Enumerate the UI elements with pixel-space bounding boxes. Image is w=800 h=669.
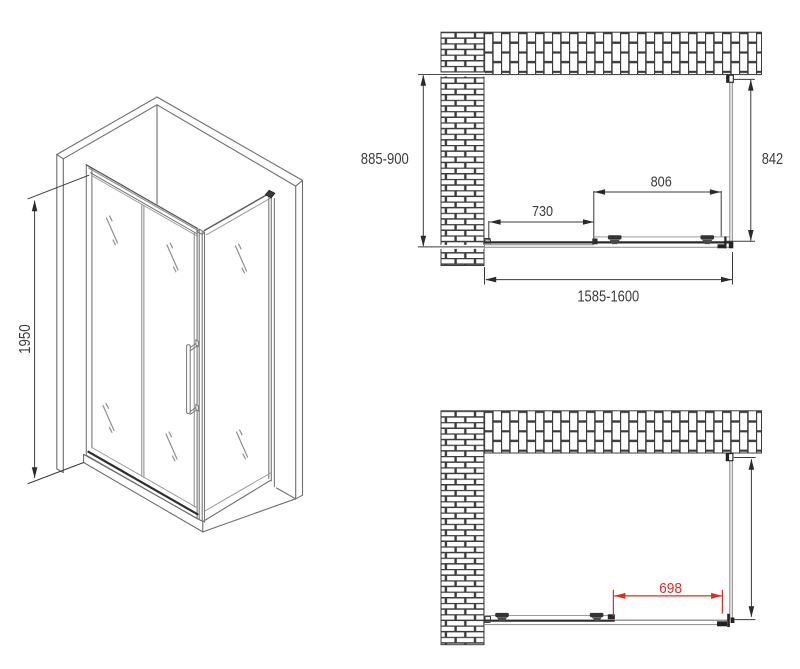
svg-text:842: 842 [762, 151, 783, 168]
svg-text:1585-1600: 1585-1600 [577, 288, 639, 305]
svg-text:698: 698 [659, 580, 682, 597]
svg-text:885-900: 885-900 [361, 151, 409, 168]
svg-text:806: 806 [651, 174, 672, 191]
svg-text:730: 730 [532, 203, 553, 220]
svg-text:1950: 1950 [17, 324, 34, 354]
